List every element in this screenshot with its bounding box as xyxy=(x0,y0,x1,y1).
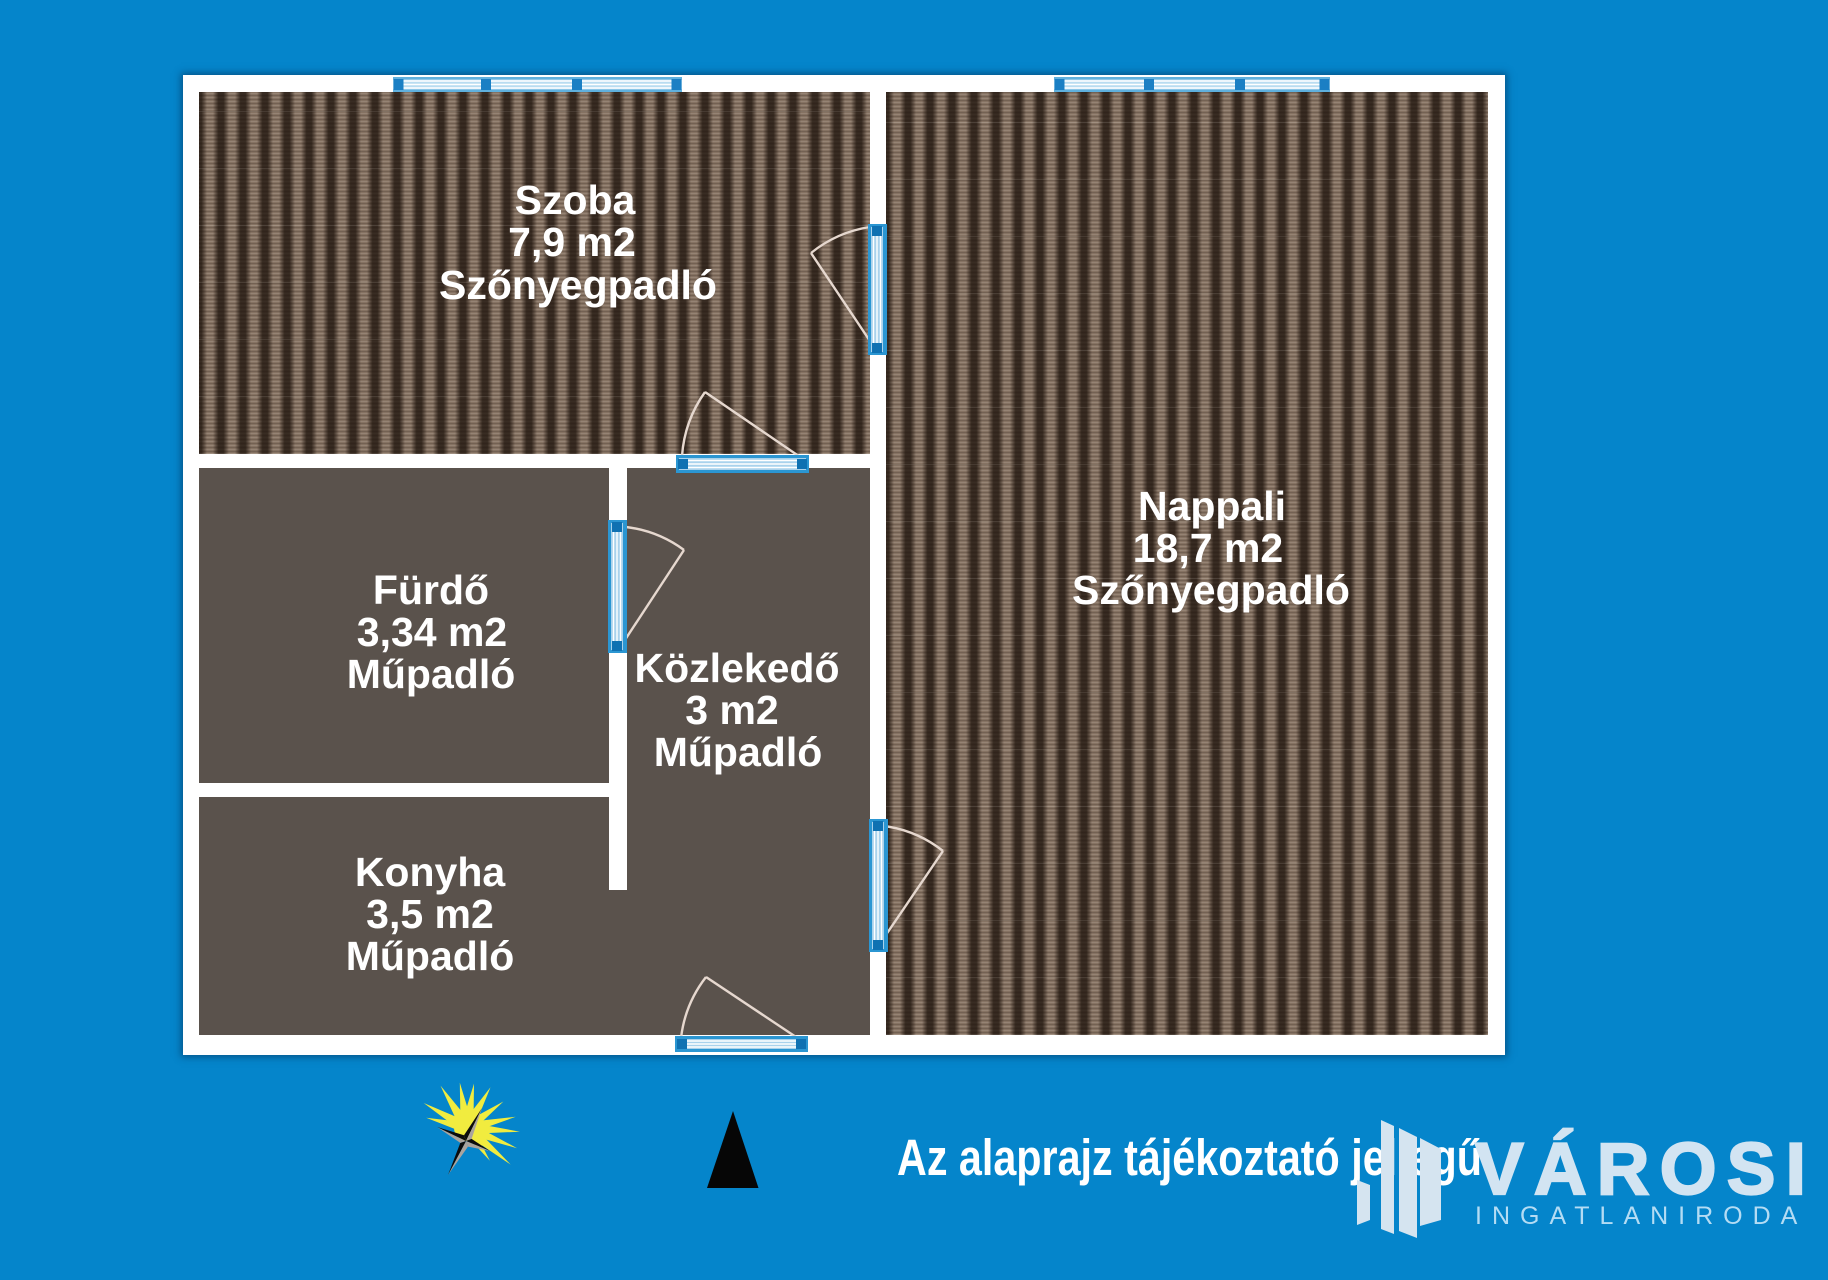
svg-text:Műpadló: Műpadló xyxy=(346,933,515,979)
svg-text:18,7 m2: 18,7 m2 xyxy=(1133,525,1283,571)
svg-text:3 m2: 3 m2 xyxy=(685,687,778,733)
svg-text:Nappali: Nappali xyxy=(1138,483,1286,529)
svg-text:INGATLANIRODA: INGATLANIRODA xyxy=(1475,1202,1807,1230)
svg-text:7,9 m2: 7,9 m2 xyxy=(508,219,636,265)
svg-text:Konyha: Konyha xyxy=(355,849,507,895)
svg-text:3,34 m2: 3,34 m2 xyxy=(357,609,507,655)
svg-text:Műpadló: Műpadló xyxy=(347,651,516,697)
svg-text:Az alaprajz tájékoztató jelleg: Az alaprajz tájékoztató jellegű xyxy=(897,1129,1482,1186)
svg-text:VÁROSI: VÁROSI xyxy=(1475,1129,1816,1210)
svg-text:3,5 m2: 3,5 m2 xyxy=(366,891,494,937)
svg-text:Szőnyegpadló: Szőnyegpadló xyxy=(1072,567,1350,613)
svg-text:Műpadló: Műpadló xyxy=(654,729,823,775)
svg-text:Szoba: Szoba xyxy=(515,177,637,223)
svg-text:Fürdő: Fürdő xyxy=(373,567,489,613)
svg-text:Közlekedő: Közlekedő xyxy=(634,645,839,691)
svg-text:Szőnyegpadló: Szőnyegpadló xyxy=(439,262,717,308)
